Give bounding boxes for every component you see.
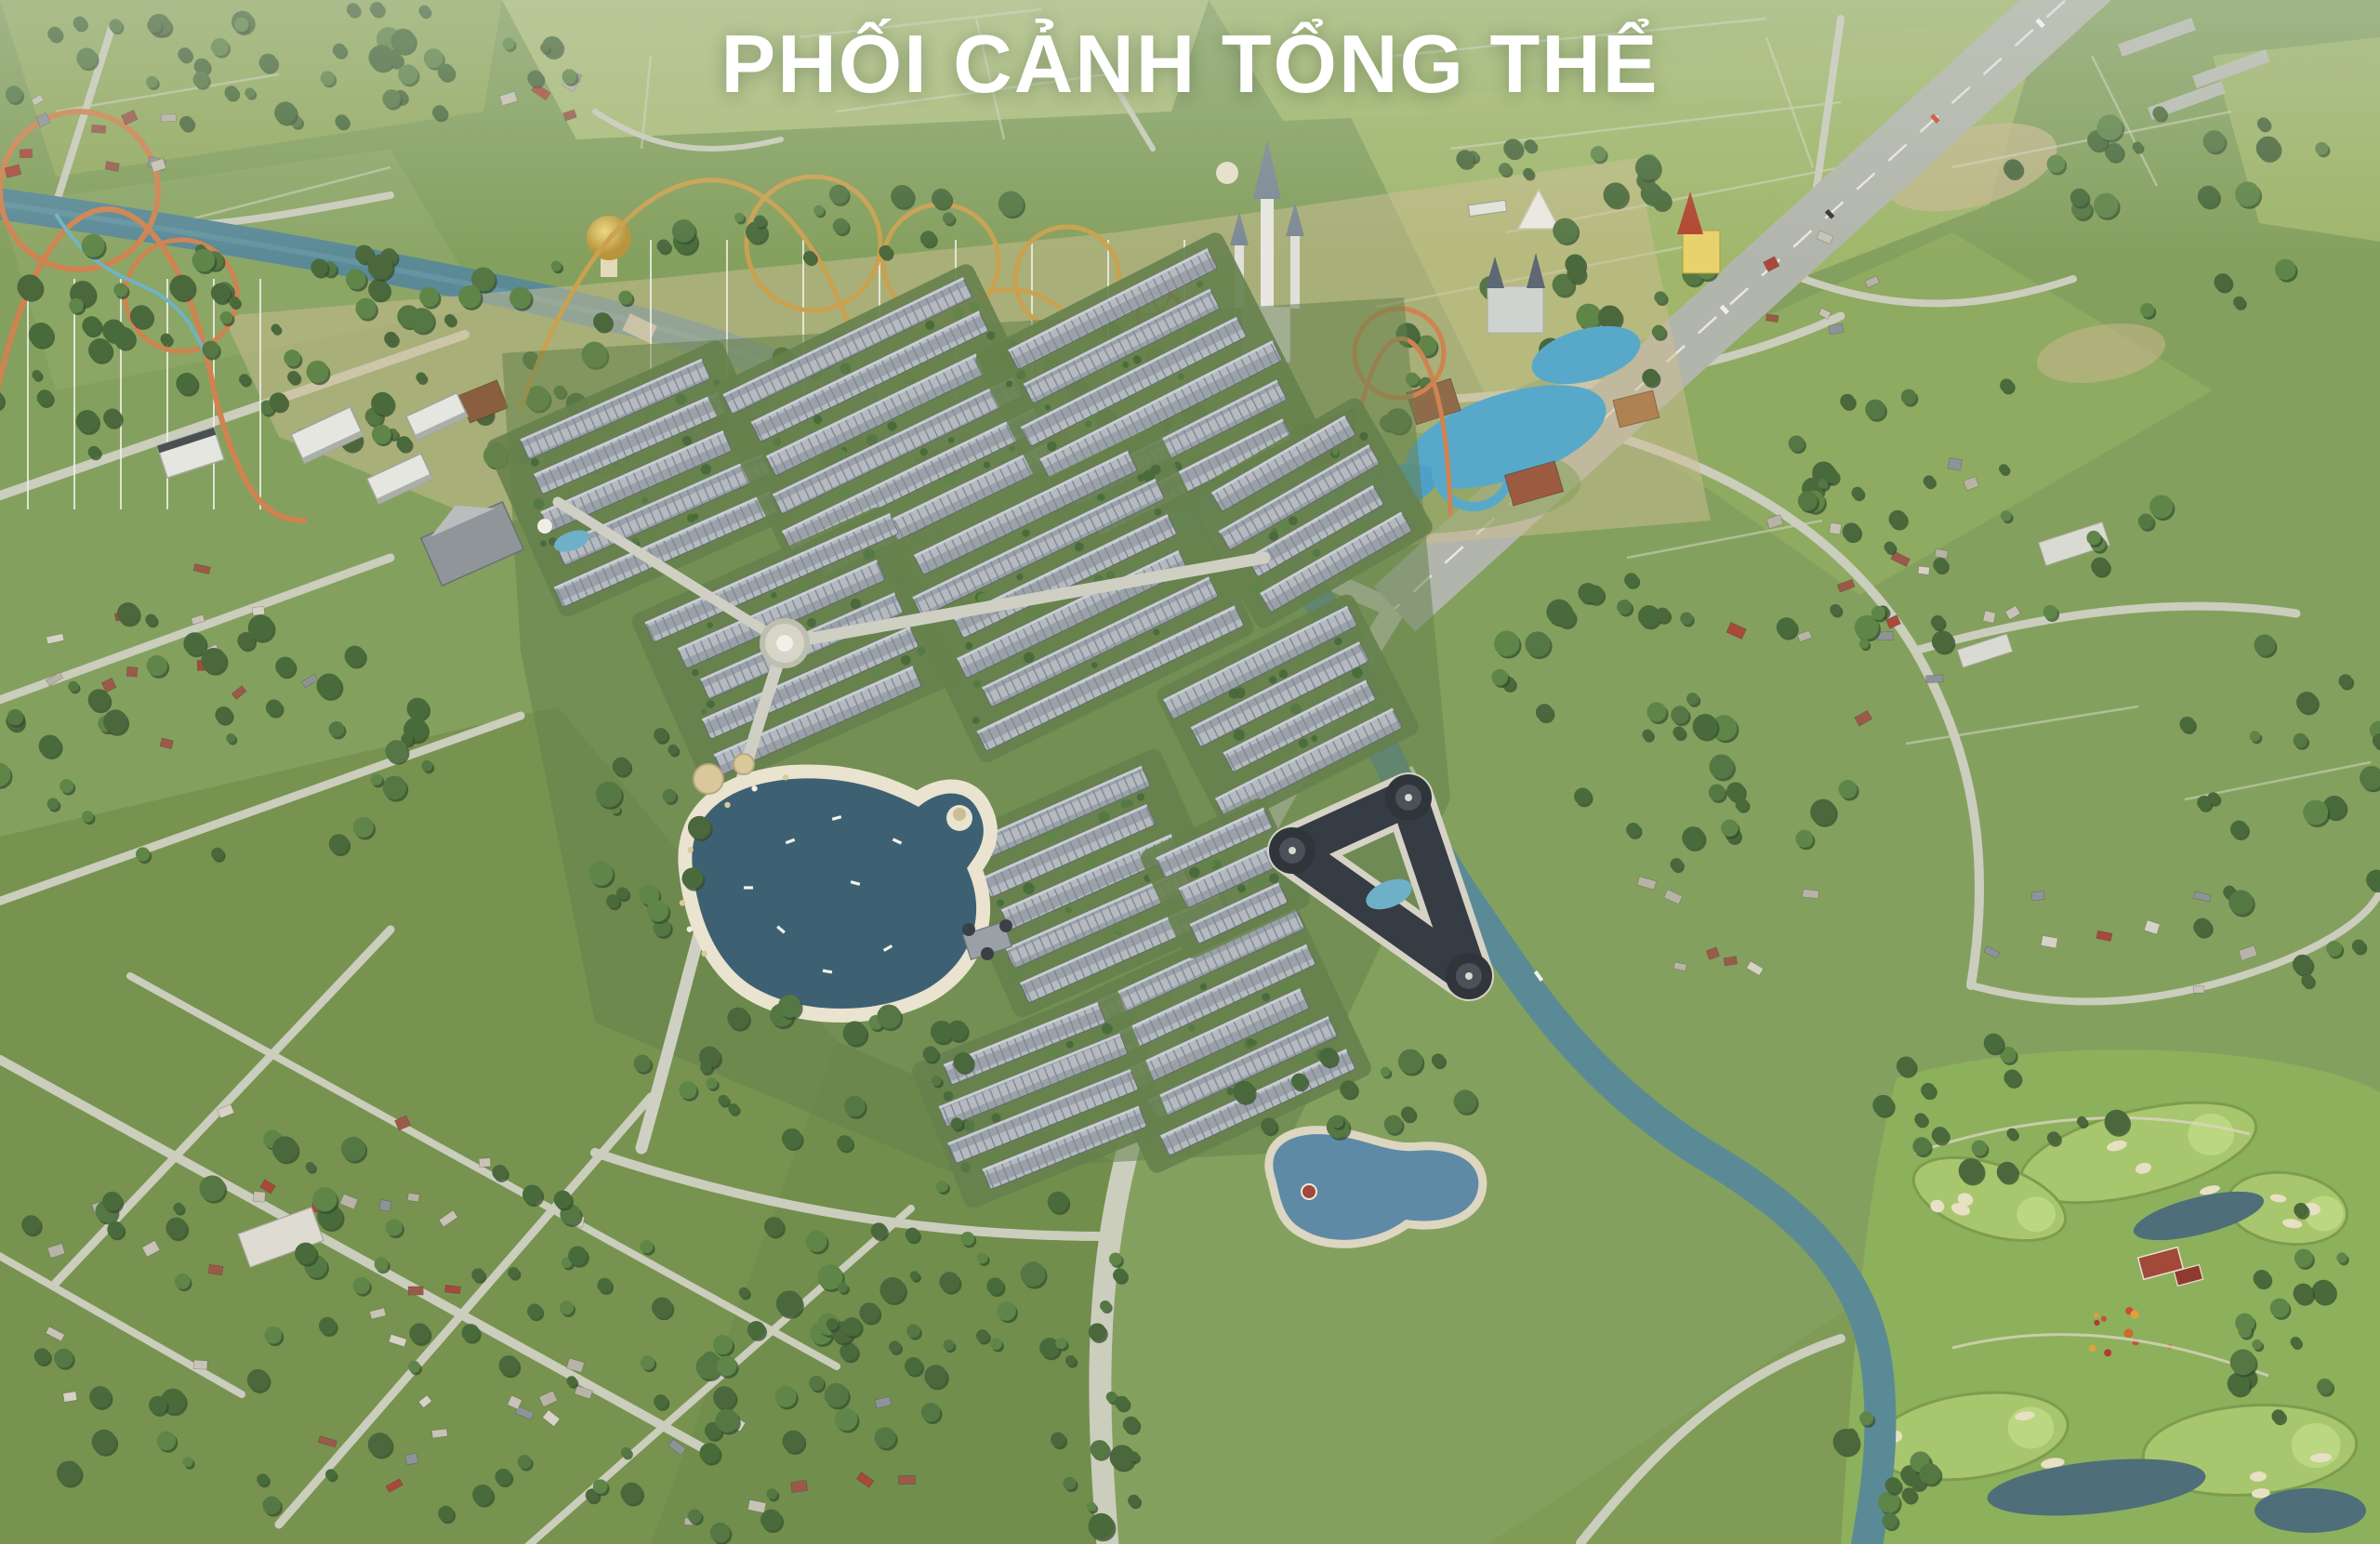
page-title: PHỐI CẢNH TỔNG THỂ: [721, 17, 1659, 112]
house-icon: [208, 1264, 223, 1274]
house-icon: [379, 1200, 391, 1212]
house-icon: [193, 1360, 207, 1369]
house-icon: [899, 1475, 916, 1484]
house-icon: [1926, 675, 1944, 683]
house-icon: [1724, 957, 1738, 966]
house-icon: [1983, 611, 1996, 624]
house-icon: [1948, 457, 1962, 470]
master-plan-render: [0, 0, 2380, 1544]
house-icon: [253, 1192, 265, 1203]
house-icon: [408, 1287, 423, 1295]
house-icon: [252, 606, 264, 615]
house-icon: [431, 1429, 447, 1438]
house-icon: [1803, 890, 1819, 899]
house-icon: [405, 1453, 418, 1465]
house-icon: [479, 1158, 491, 1168]
house-icon: [1829, 323, 1844, 335]
house-icon: [1830, 522, 1842, 534]
fountain-icon: [776, 635, 793, 652]
house-icon: [126, 666, 138, 677]
roundabout: [762, 621, 807, 666]
screenshot: PHỐI CẢNH TỔNG THỂ: [0, 0, 2380, 1544]
house-icon: [2031, 891, 2044, 901]
house-icon: [444, 1286, 460, 1294]
house-icon: [2193, 986, 2204, 994]
boat-icon: [744, 886, 753, 889]
house-icon: [407, 1193, 419, 1201]
parasol-icon: [734, 754, 754, 774]
pavilion-icon: [1302, 1184, 1316, 1199]
house-icon: [63, 1392, 77, 1402]
house-icon: [1918, 566, 1930, 574]
house-icon: [1766, 314, 1778, 323]
parasol-icon: [694, 764, 723, 794]
house-icon: [791, 1480, 808, 1492]
